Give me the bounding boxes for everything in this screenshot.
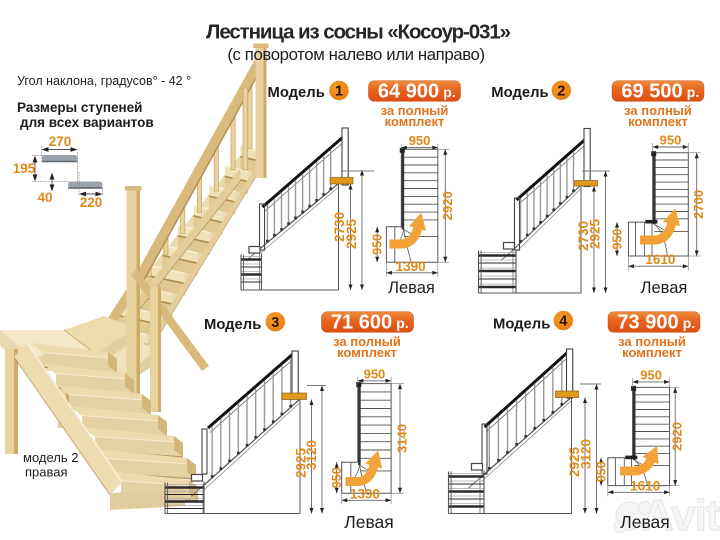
svg-text:1610: 1610 (630, 478, 660, 493)
svg-text:950: 950 (371, 234, 385, 255)
svg-text:2700: 2700 (691, 190, 706, 219)
svg-text:Левая: Левая (641, 279, 688, 297)
svg-text:2925: 2925 (344, 218, 359, 249)
svg-text:Модель: Модель (491, 85, 548, 101)
svg-text:950: 950 (330, 467, 344, 488)
svg-text:комплект: комплект (622, 345, 682, 360)
svg-text:3: 3 (271, 315, 279, 331)
svg-text:40: 40 (37, 190, 52, 205)
svg-text:950: 950 (611, 229, 625, 250)
svg-text:3120: 3120 (304, 440, 319, 470)
svg-text:2925: 2925 (588, 218, 603, 249)
svg-text:4: 4 (559, 314, 567, 330)
svg-text:р.: р. (687, 84, 699, 100)
svg-text:950: 950 (595, 461, 609, 482)
svg-text:Левая: Левая (344, 512, 394, 532)
svg-text:1: 1 (335, 84, 343, 100)
svg-text:1390: 1390 (350, 486, 380, 501)
svg-text:комплект: комплект (337, 345, 397, 360)
svg-text:р.: р. (396, 315, 408, 331)
svg-text:Лестница из сосны «Косоур-031»: Лестница из сосны «Косоур-031» (206, 21, 511, 44)
svg-text:правая: правая (25, 465, 68, 480)
svg-text:Левая: Левая (620, 512, 670, 532)
svg-text:Размеры ступеней: Размеры ступеней (17, 100, 142, 115)
svg-text:Угол наклона, градусов° - 42 °: Угол наклона, градусов° - 42 ° (17, 74, 191, 88)
svg-text:1390: 1390 (396, 259, 426, 274)
svg-text:950: 950 (409, 133, 431, 148)
svg-text:69 500: 69 500 (621, 80, 682, 102)
svg-text:2: 2 (557, 83, 565, 99)
svg-text:950: 950 (640, 367, 662, 382)
svg-text:270: 270 (49, 134, 72, 149)
svg-text:1610: 1610 (645, 252, 675, 267)
svg-text:комплект: комплект (385, 114, 445, 129)
svg-text:73 900: 73 900 (617, 311, 678, 333)
svg-text:71 600: 71 600 (331, 311, 392, 333)
svg-text:(с поворотом налево или направ: (с поворотом налево или направо) (227, 45, 484, 64)
svg-text:195: 195 (13, 161, 36, 176)
svg-text:Модель: Модель (493, 317, 550, 333)
svg-text:2920: 2920 (670, 422, 685, 451)
svg-text:950: 950 (364, 366, 386, 381)
svg-text:2920: 2920 (440, 191, 455, 220)
svg-text:64 900: 64 900 (378, 80, 439, 102)
svg-text:для всех вариантов: для всех вариантов (20, 115, 154, 130)
svg-text:950: 950 (660, 133, 682, 148)
svg-text:комплект: комплект (628, 114, 688, 129)
svg-text:р.: р. (443, 84, 455, 100)
svg-text:3120: 3120 (578, 439, 593, 469)
svg-text:Левая: Левая (388, 279, 435, 297)
svg-text:Модель: Модель (204, 317, 261, 333)
svg-text:р.: р. (683, 315, 695, 331)
svg-text:3140: 3140 (395, 424, 410, 453)
svg-text:220: 220 (80, 195, 103, 210)
svg-text:Модель: Модель (268, 85, 325, 101)
svg-text:модель 2: модель 2 (23, 450, 78, 465)
